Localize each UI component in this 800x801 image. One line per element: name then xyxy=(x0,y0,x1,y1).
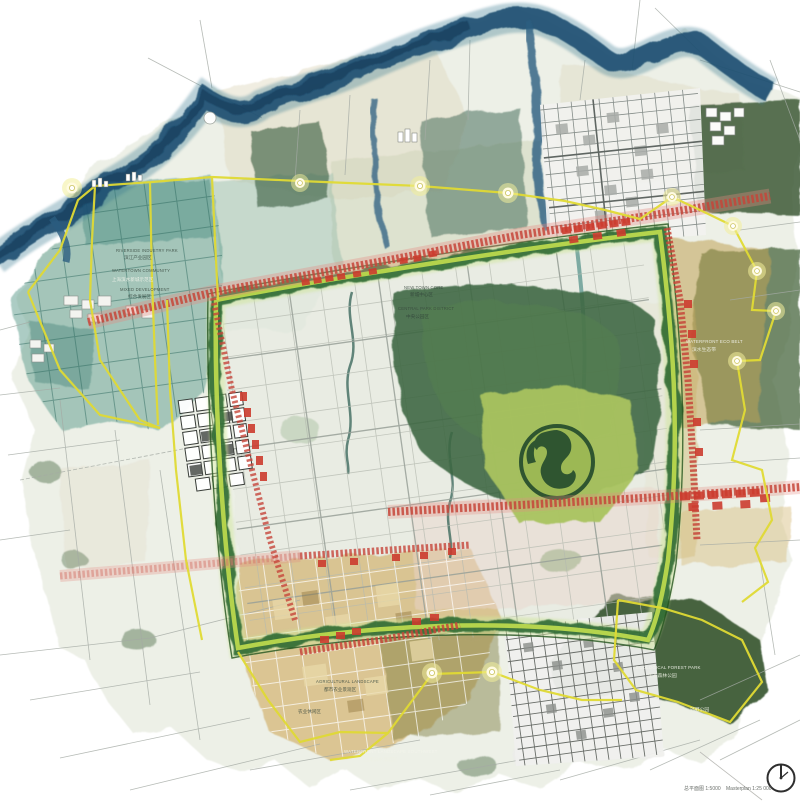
masterplan-map: RIVERSIDE INDUSTRY PARK 滨江产业园区 WATERTOWN… xyxy=(0,0,800,801)
map-label: AGRICULTURAL LANDSCAPE xyxy=(316,679,379,684)
map-label: RIVERSIDE INDUSTRY PARK xyxy=(116,248,178,253)
north-indicator xyxy=(700,752,795,800)
map-label: NEW TOWN CORE xyxy=(404,285,443,290)
glow-node xyxy=(410,176,430,196)
map-label: WATERTOWN COMMUNITY xyxy=(112,268,170,273)
map-label: 都市农业景观区 xyxy=(324,686,357,693)
map-canvas: RIVERSIDE INDUSTRY PARK 滨江产业园区 WATERTOWN… xyxy=(0,0,800,801)
map-label: 西南滨水景观区 xyxy=(364,756,398,763)
map-label: 滨江产业园区 xyxy=(124,254,152,261)
glow-node xyxy=(728,352,746,370)
map-label: 郊野公园 xyxy=(690,706,709,713)
map-label: 新城中心区 xyxy=(410,291,433,298)
map-label: WATERFRONT ECO BELT xyxy=(686,339,743,344)
map-label: ECOLOGICAL FOREST PARK xyxy=(636,665,701,670)
map-label: 生态森林公园 xyxy=(648,672,677,679)
map-label: 综合发展区 xyxy=(128,293,151,300)
map-label: MIXED DEVELOPMENT xyxy=(120,287,170,292)
map-label: 滨水生态带 xyxy=(692,346,716,353)
white-dot-node xyxy=(204,112,216,124)
map-label: 上海滨水新城示范区 xyxy=(112,276,154,283)
scale-left-text: 总平面图 1:5000 xyxy=(684,785,721,792)
glow-node xyxy=(724,217,742,235)
glow-node xyxy=(291,174,309,192)
map-label: 农业休闲区 xyxy=(298,708,321,715)
park-emblem xyxy=(521,426,593,498)
glow-node xyxy=(767,302,785,320)
glow-node xyxy=(748,262,766,280)
glow-node xyxy=(498,183,518,203)
glow-node xyxy=(663,188,681,206)
map-label: CENTRAL PARK DISTRICT xyxy=(398,306,455,311)
map-label: WATERFRONT LANDSCAPE SOUTHWEST xyxy=(344,749,438,754)
map-label: 中央公园区 xyxy=(406,313,429,320)
scale-note: 总平面图 1:5000 Masterplan 1:25 000 xyxy=(684,785,772,792)
glow-node xyxy=(422,663,442,683)
glow-node xyxy=(62,178,82,198)
glow-node xyxy=(482,662,502,682)
scale-right-text: Masterplan 1:25 000 xyxy=(726,786,772,792)
